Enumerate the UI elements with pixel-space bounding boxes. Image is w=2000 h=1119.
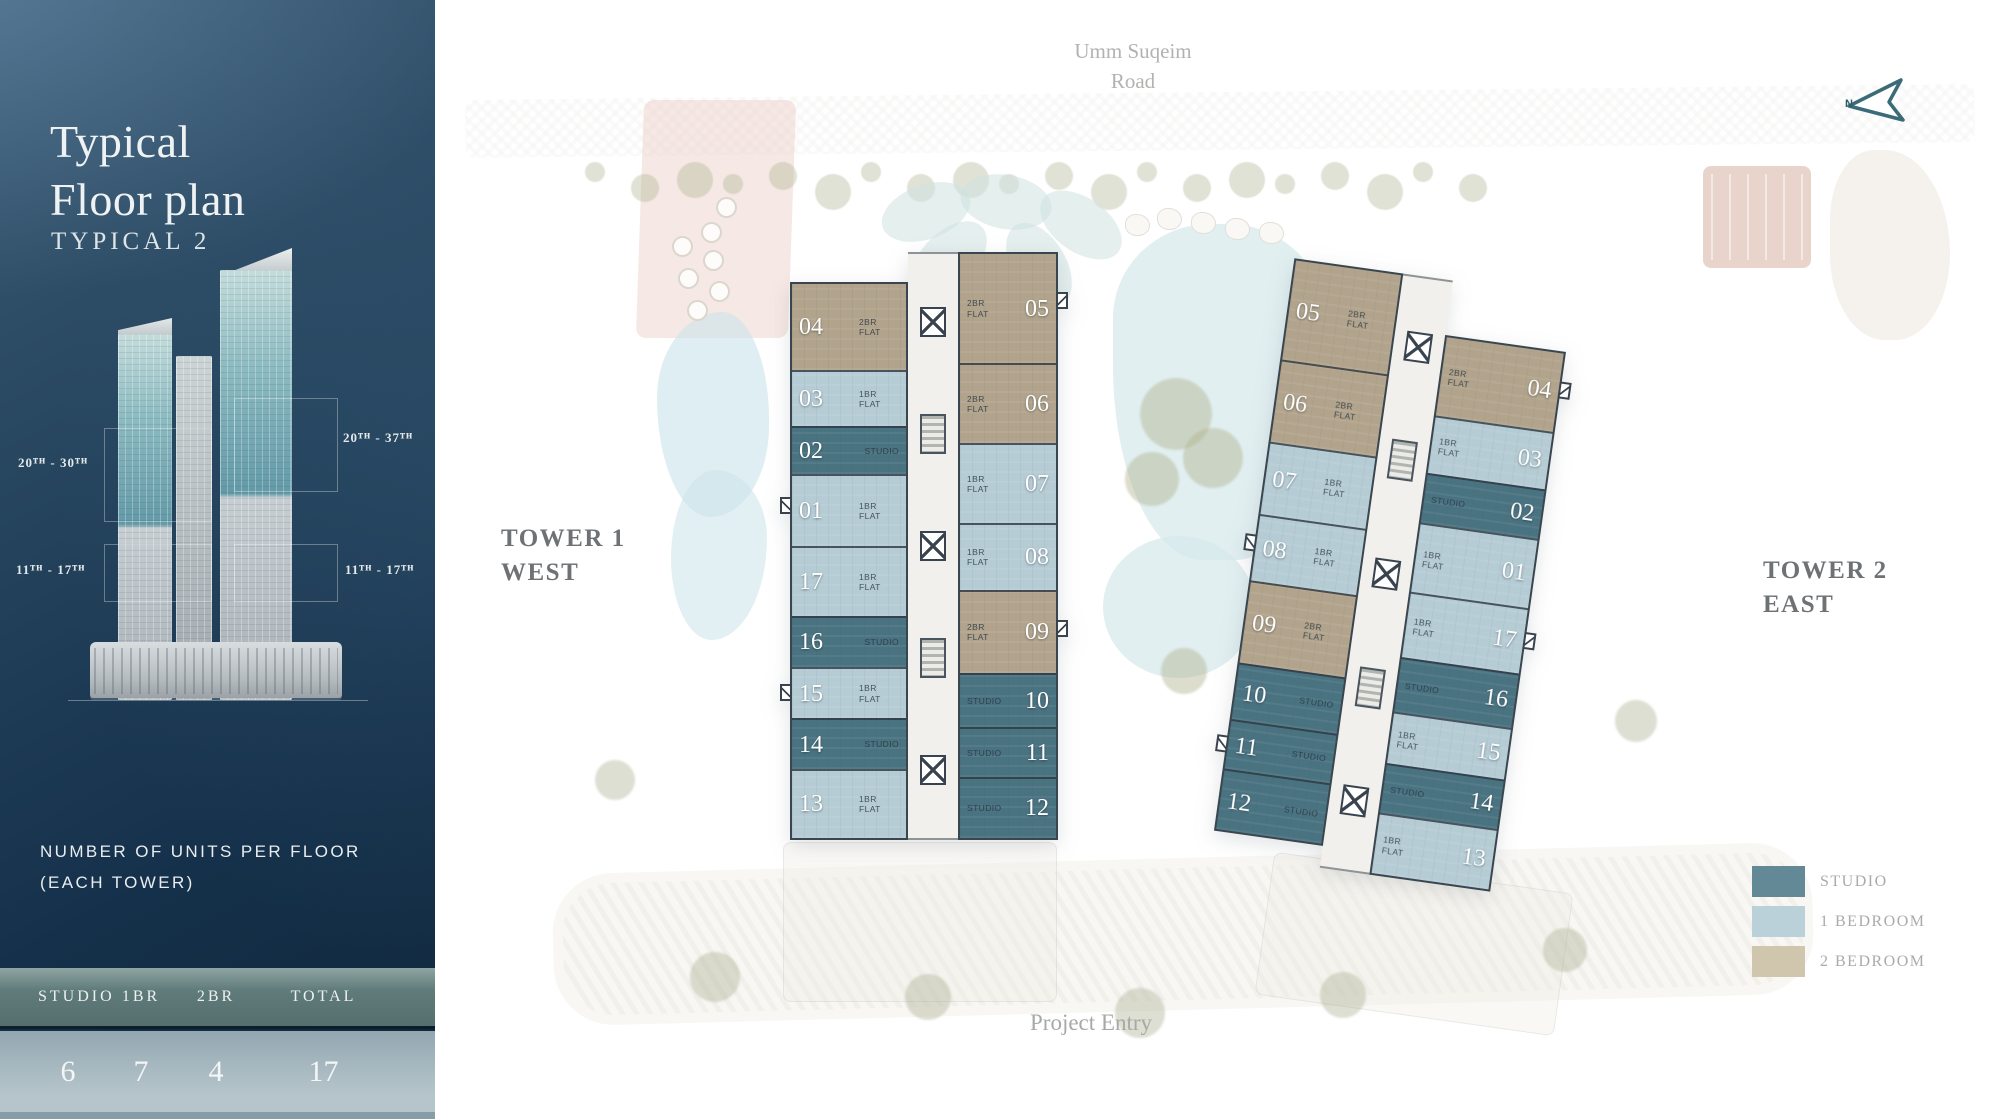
table-header-studio: STUDIO [38, 988, 98, 1006]
unit-type-label: 2BR FLAT [1447, 367, 1489, 393]
unit-14: 14STUDIO [792, 718, 906, 769]
hedge-tree [1183, 174, 1211, 202]
unit-number: 13 [799, 792, 823, 816]
tower2-label-line2: EAST [1763, 588, 1888, 622]
hedge-tree [1045, 162, 1073, 190]
elevator-icon [1403, 330, 1433, 363]
unit-number: 16 [1482, 686, 1509, 713]
hedge-tree [1275, 174, 1295, 194]
hedge-tree [723, 174, 743, 194]
unit-type-label: STUDIO [1283, 804, 1319, 819]
table-header-total: TOTAL [248, 988, 399, 1006]
deck-table [672, 236, 693, 257]
palm-tree [1125, 452, 1179, 506]
unit-type-label: 1BR FLAT [859, 501, 899, 521]
table-header-1br: 1BR [98, 988, 184, 1006]
deck-table [716, 197, 737, 218]
unit-type-label: 2BR FLAT [1302, 620, 1344, 646]
units-table-values: 67417 [0, 1031, 435, 1112]
legend-swatch [1752, 906, 1805, 937]
floor-bracket [234, 544, 338, 602]
unit-number: 07 [1271, 468, 1298, 495]
hedge-tree [1413, 162, 1433, 182]
units-note-line2: (EACH TOWER) [40, 867, 361, 898]
unit-number: 07 [1025, 472, 1049, 496]
ground-line [68, 700, 368, 701]
tower1-left-wing: 042BR FLAT031BR FLAT02STUDIO011BR FLAT17… [790, 282, 908, 840]
unit-number: 13 [1460, 844, 1487, 871]
unit-15: 151BR FLAT [792, 667, 906, 718]
unit-number: 03 [799, 387, 823, 411]
unit-number: 03 [1516, 445, 1543, 472]
unit-type-label: STUDIO [967, 696, 1002, 706]
deck-table [701, 222, 722, 243]
unit-number: 12 [1025, 796, 1049, 820]
landscape-area [1830, 150, 1950, 340]
garden-tree [1615, 700, 1657, 742]
unit-number: 12 [1226, 789, 1253, 816]
unit-type-label: 1BR FLAT [1437, 436, 1479, 462]
unit-16: 16STUDIO [792, 616, 906, 667]
floorplan-subtitle: TYPICAL 2 [51, 228, 210, 256]
unit-type-label: STUDIO [1430, 495, 1466, 510]
unit-06: 062BR FLAT [1271, 359, 1387, 456]
units-table-footer-strip [0, 1112, 435, 1119]
unit-number: 04 [799, 315, 823, 339]
floor-range-right-lower: 11ᵀᴴ - 17ᵀᴴ [345, 562, 414, 578]
tower1-right-wing: 2BR FLAT052BR FLAT061BR FLAT071BR FLAT08… [958, 252, 1058, 840]
unit-type-label: 1BR FLAT [859, 572, 899, 592]
project-entry-label: Project Entry [1001, 1010, 1181, 1036]
unit-01: 011BR FLAT [792, 474, 906, 546]
unit-number: 10 [1025, 689, 1049, 713]
lagoon-pool [671, 470, 767, 640]
unit-number: 17 [1491, 625, 1518, 652]
unit-05: 2BR FLAT05 [960, 254, 1056, 363]
building-render [20, 260, 415, 710]
pool-rock [1259, 222, 1284, 244]
hedge-tree [631, 174, 659, 202]
unit-type-label: 2BR FLAT [967, 394, 1007, 414]
pool-rock [1225, 218, 1250, 240]
unit-number: 09 [1025, 620, 1049, 644]
tower1-label: TOWER 1 WEST [501, 522, 626, 590]
floor-range-right-upper: 20ᵀᴴ - 37ᵀᴴ [343, 430, 413, 446]
unit-number: 06 [1282, 390, 1309, 417]
unit-11: STUDIO11 [960, 727, 1056, 776]
unit-type-label: 1BR FLAT [1421, 549, 1463, 575]
sidebar: Typical Floor plan TYPICAL 2 20ᵀᴴ - 30ᵀᴴ… [0, 0, 435, 1119]
unit-type-label: STUDIO [1299, 696, 1335, 711]
unit-number: 01 [799, 499, 823, 523]
unit-type-label: STUDIO [967, 748, 1002, 758]
north-arrow: N [1843, 74, 1923, 134]
unit-type-label: 1BR FLAT [1396, 729, 1438, 755]
site-plan: Umm Suqeim Road N TOWER 1 WEST TOWER 2 E… [435, 0, 2000, 1119]
hedge-tree [815, 174, 851, 210]
road-label-line2: Road [1033, 66, 1233, 96]
elevator-icon [920, 755, 946, 785]
legend-item: STUDIO [1752, 866, 1926, 897]
floor-range-left-lower: 11ᵀᴴ - 17ᵀᴴ [16, 562, 85, 578]
unit-type-label: 2BR FLAT [1346, 308, 1388, 334]
page: Typical Floor plan TYPICAL 2 20ᵀᴴ - 30ᵀᴴ… [0, 0, 2000, 1119]
unit-06: 2BR FLAT06 [960, 363, 1056, 443]
page-title: Typical Floor plan [50, 113, 245, 229]
unit-17: 171BR FLAT [792, 546, 906, 615]
unit-type-label: STUDIO [1390, 785, 1426, 800]
legend-item: 2 BEDROOM [1752, 946, 1926, 977]
garden-tree [1543, 928, 1587, 972]
hedge-tree [861, 162, 881, 182]
garden-tree [1320, 972, 1366, 1018]
hedge-tree [1137, 162, 1157, 182]
deck-table [703, 250, 724, 271]
unit-type-label: 2BR FLAT [1333, 399, 1375, 425]
floor-bracket [234, 398, 338, 492]
floor-bracket [104, 544, 212, 602]
unit-10: STUDIO10 [960, 673, 1056, 727]
unit-13: 131BR FLAT [792, 769, 906, 838]
unit-number: 17 [799, 570, 823, 594]
hedge-tree [1367, 174, 1403, 210]
unit-type-legend: STUDIO1 BEDROOM2 BEDROOM [1752, 866, 1926, 986]
unit-number: 08 [1261, 537, 1288, 564]
palm-tree [1161, 648, 1207, 694]
stairs-icon [1355, 666, 1386, 709]
units-note-line1: NUMBER OF UNITS PER FLOOR [40, 836, 361, 867]
legend-swatch [1752, 866, 1805, 897]
table-value-2br: 4 [184, 1055, 248, 1089]
unit-number: 09 [1250, 611, 1277, 638]
unit-number: 06 [1025, 392, 1049, 416]
table-value-studio: 6 [38, 1055, 98, 1089]
unit-05: 052BR FLAT [1282, 260, 1401, 374]
unit-type-label: 1BR FLAT [967, 547, 1007, 567]
tower1-floorplan: 042BR FLAT031BR FLAT02STUDIO011BR FLAT17… [790, 252, 1058, 840]
unit-07: 1BR FLAT07 [960, 443, 1056, 523]
units-table-header: STUDIO1BR2BRTOTAL [0, 968, 435, 1026]
unit-type-label: STUDIO [864, 637, 899, 647]
legend-swatch [1752, 946, 1805, 977]
pool-rock [1191, 212, 1216, 234]
hedge-tree [1229, 162, 1265, 198]
pool-deck [636, 100, 796, 338]
elevator-icon [1339, 784, 1369, 817]
deck-table [687, 300, 708, 321]
unit-12: STUDIO12 [960, 777, 1056, 838]
unit-type-label: STUDIO [1404, 681, 1440, 696]
unit-02: 02STUDIO [792, 426, 906, 475]
unit-04: 042BR FLAT [792, 284, 906, 370]
court-structures [1703, 166, 1811, 268]
unit-08: 1BR FLAT08 [960, 523, 1056, 590]
unit-type-label: 2BR FLAT [859, 317, 899, 337]
pool-rock [1125, 214, 1150, 236]
tower1-label-line2: WEST [501, 556, 626, 590]
table-header-2br: 2BR [184, 988, 248, 1006]
floor-bracket [104, 428, 212, 522]
hedge-tree [677, 162, 713, 198]
units-note: NUMBER OF UNITS PER FLOOR (EACH TOWER) [40, 836, 361, 898]
tower1-label-line1: TOWER 1 [501, 522, 626, 556]
unit-number: 11 [1026, 741, 1049, 765]
unit-type-label: 1BR FLAT [859, 794, 899, 814]
unit-type-label: 1BR FLAT [1412, 616, 1454, 642]
elevator-icon [1371, 557, 1401, 590]
unit-number: 15 [1475, 738, 1502, 765]
deck-table [709, 281, 730, 302]
pool-rock [1157, 208, 1182, 230]
unit-type-label: STUDIO [967, 803, 1002, 813]
road-label: Umm Suqeim Road [1033, 36, 1233, 96]
page-title-line2: Floor plan [50, 171, 245, 229]
stairs-icon [920, 414, 946, 454]
unit-03: 031BR FLAT [792, 370, 906, 426]
unit-number: 05 [1294, 299, 1321, 326]
road-label-line1: Umm Suqeim [1033, 36, 1233, 66]
floor-range-left-upper: 20ᵀᴴ - 30ᵀᴴ [18, 455, 88, 471]
unit-number: 11 [1233, 734, 1259, 761]
deck-table [678, 268, 699, 289]
legend-label: 2 BEDROOM [1820, 953, 1926, 971]
unit-type-label: 2BR FLAT [967, 298, 1007, 318]
hedge-tree [769, 162, 797, 190]
unit-type-label: STUDIO [864, 446, 899, 456]
unit-type-label: 2BR FLAT [967, 622, 1007, 642]
legend-label: STUDIO [1820, 873, 1888, 891]
walkway [551, 842, 1815, 1027]
stairs-icon [920, 638, 946, 678]
render-podium [90, 642, 342, 698]
unit-number: 02 [1509, 499, 1536, 526]
unit-number: 14 [1468, 789, 1495, 816]
hedge-tree [1459, 174, 1487, 202]
legend-label: 1 BEDROOM [1820, 913, 1926, 931]
elevator-icon [920, 307, 946, 337]
unit-number: 10 [1241, 681, 1268, 708]
unit-type-label: 1BR FLAT [1322, 477, 1364, 503]
unit-type-label: STUDIO [1291, 749, 1327, 764]
garden-tree [595, 760, 635, 800]
tower-core [908, 252, 958, 840]
elevator-icon [920, 531, 946, 561]
unit-type-label: 1BR FLAT [859, 389, 899, 409]
table-value-total: 17 [248, 1055, 399, 1089]
unit-number: 15 [799, 682, 823, 706]
unit-number: 04 [1526, 377, 1553, 404]
unit-09: 2BR FLAT09 [960, 590, 1056, 673]
unit-number: 02 [799, 439, 823, 463]
north-letter: N [1845, 98, 1853, 110]
hedge-tree [1321, 162, 1349, 190]
tower2-label: TOWER 2 EAST [1763, 554, 1888, 622]
unit-number: 16 [799, 630, 823, 654]
unit-type-label: 1BR FLAT [1313, 546, 1355, 572]
unit-type-label: 1BR FLAT [967, 474, 1007, 494]
stairs-icon [1387, 439, 1418, 482]
garden-tree [905, 974, 951, 1020]
garden-tree [690, 952, 740, 1002]
page-title-line1: Typical [50, 113, 245, 171]
hedge-tree [585, 162, 605, 182]
tower2-label-line1: TOWER 2 [1763, 554, 1888, 588]
legend-item: 1 BEDROOM [1752, 906, 1926, 937]
table-value-1br: 7 [98, 1055, 184, 1089]
unit-number: 08 [1025, 545, 1049, 569]
unit-number: 05 [1025, 297, 1049, 321]
unit-type-label: 1BR FLAT [1381, 835, 1423, 861]
unit-number: 01 [1500, 558, 1527, 585]
unit-number: 14 [799, 733, 823, 757]
unit-09: 092BR FLAT [1240, 580, 1356, 677]
palm-tree [1183, 428, 1243, 488]
unit-type-label: 1BR FLAT [859, 683, 899, 703]
unit-type-label: STUDIO [864, 739, 899, 749]
